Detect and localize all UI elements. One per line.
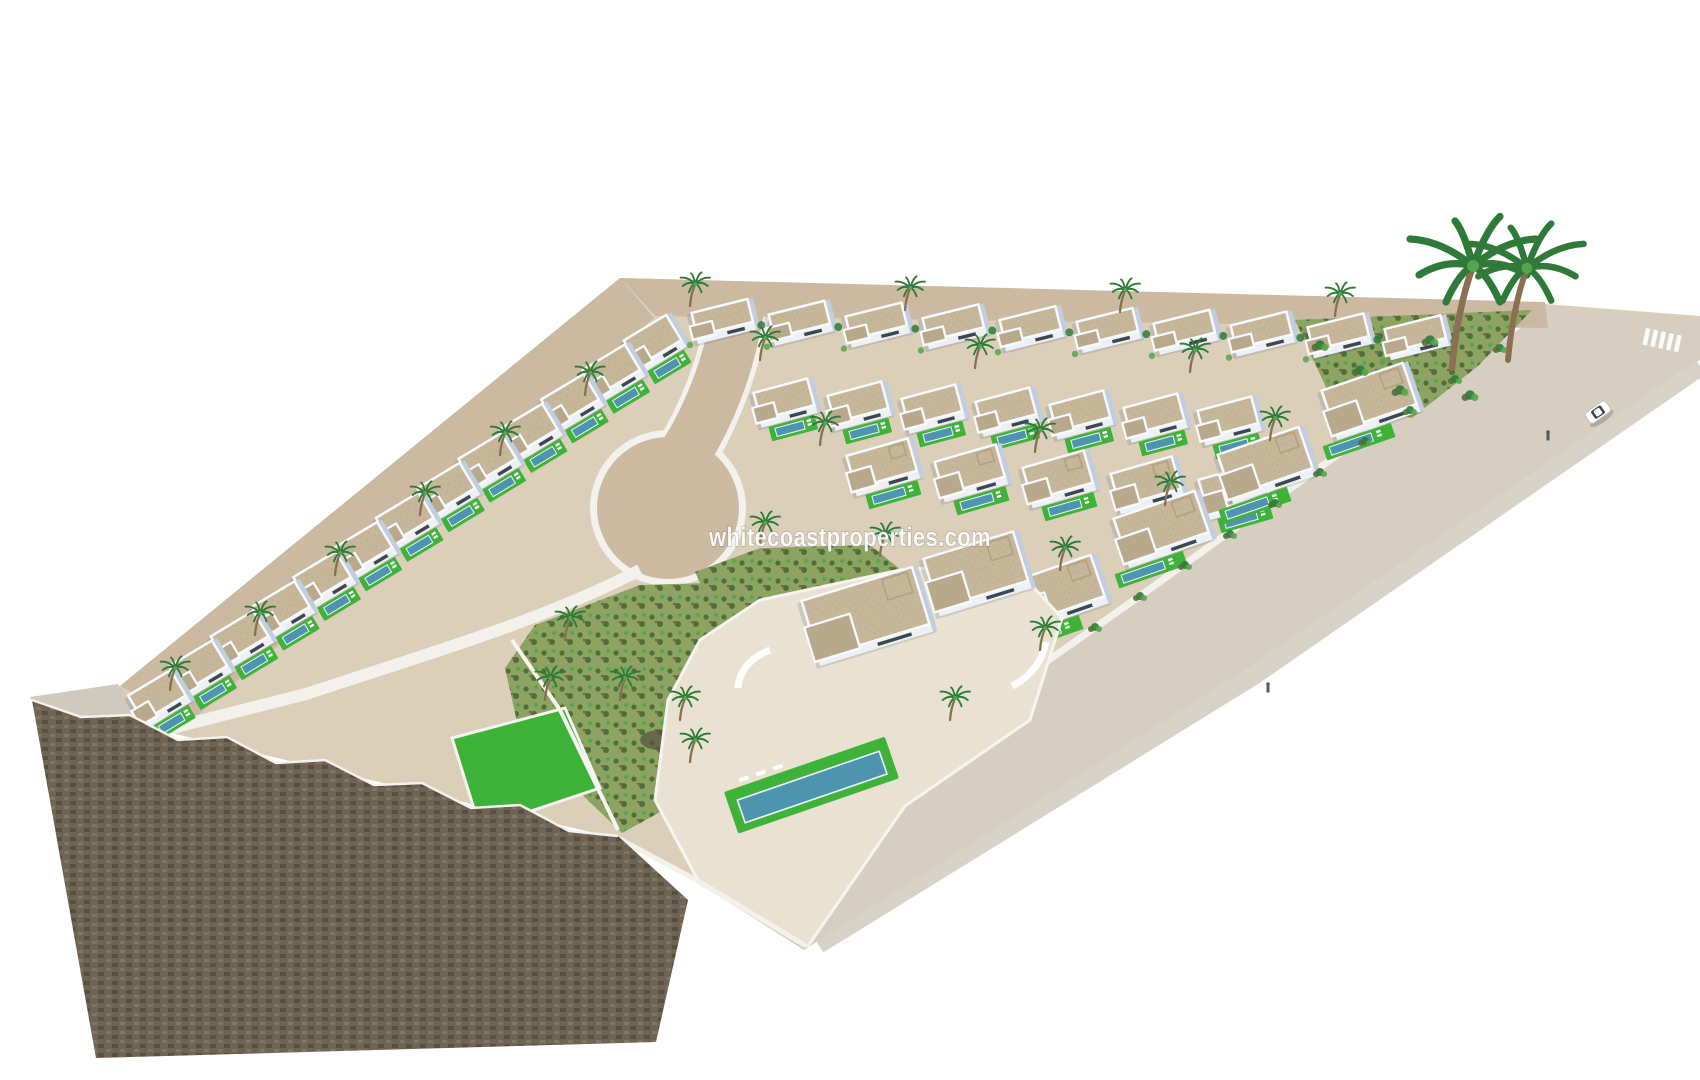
cul-de-sac bbox=[597, 437, 739, 579]
pedestrian bbox=[1546, 430, 1550, 440]
watermark-text: whitecoastproperties.com bbox=[708, 522, 991, 552]
render-stage: whitecoastproperties.com bbox=[0, 0, 1700, 1080]
aerial-render-scene: whitecoastproperties.com bbox=[0, 0, 1700, 1080]
pedestrian bbox=[1266, 682, 1270, 692]
